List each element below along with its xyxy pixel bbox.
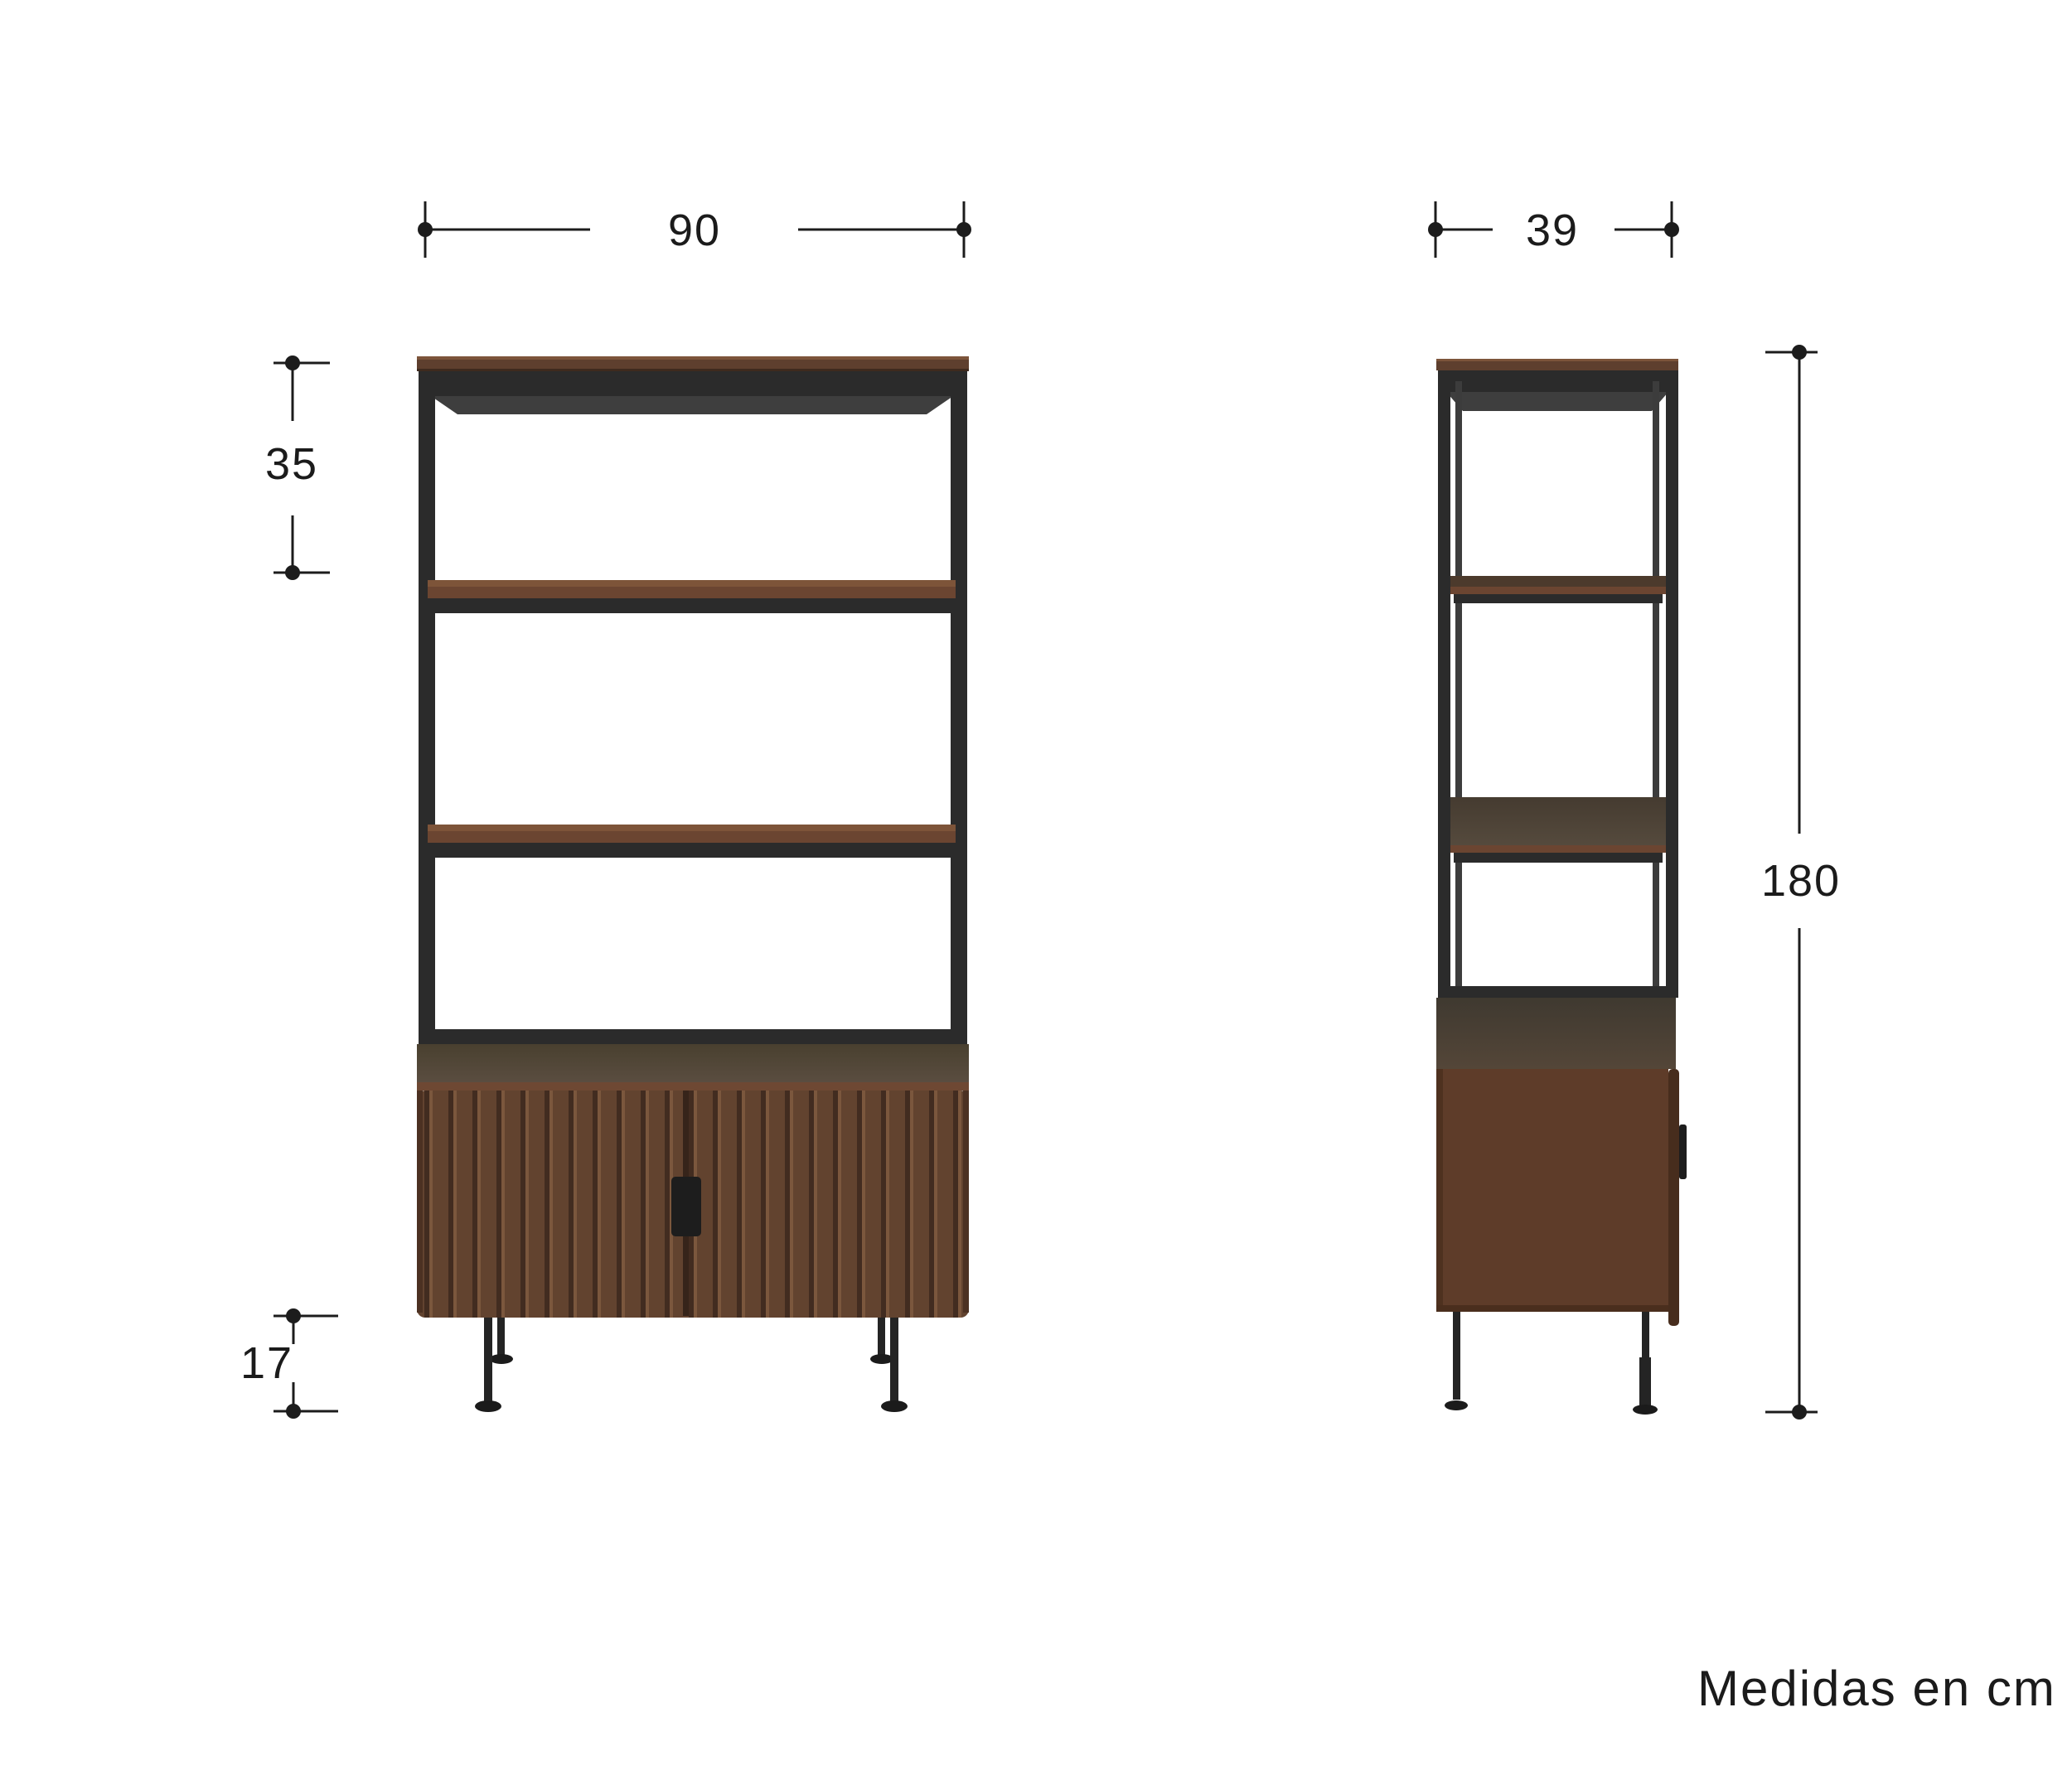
cabinet-left-edge — [417, 1091, 423, 1313]
diagram-svg: 90 39 35 17 180 — [0, 0, 2072, 1775]
side-top-panel-highlight — [1436, 359, 1678, 361]
shelf-rail — [432, 598, 951, 613]
door-front-edge — [1668, 1069, 1679, 1326]
dimension-label-top-section: 35 — [265, 439, 318, 489]
front-left-post — [419, 371, 435, 1044]
shelf-rail — [432, 843, 951, 858]
cabinet-top-rail — [425, 1029, 960, 1044]
dimension-label-leg-height: 17 — [240, 1338, 293, 1388]
shelf-rail — [1454, 594, 1663, 603]
leg-foot — [1633, 1405, 1658, 1415]
cabinet-top-front-edge — [417, 1082, 969, 1091]
side-view — [1436, 359, 1687, 1415]
front-right-post — [951, 371, 967, 1044]
dimension-front-width: 90 — [418, 201, 971, 258]
cabinet-top-rail — [1441, 986, 1674, 998]
leg-foot — [1445, 1400, 1468, 1410]
side-shelf-1 — [1450, 576, 1666, 603]
back-leg — [878, 1318, 885, 1356]
side-back-leg-lower — [1639, 1357, 1651, 1405]
cabinet-top-surface — [1436, 998, 1676, 1069]
cabinet-top-surface — [417, 1044, 969, 1082]
cabinet-side-panel — [1436, 1069, 1668, 1312]
leg-foot — [475, 1400, 501, 1412]
front-top-rail — [425, 371, 960, 396]
side-shelf-2 — [1450, 797, 1666, 863]
back-leg — [497, 1318, 505, 1356]
side-top-rail — [1441, 370, 1673, 392]
shelf-front-face — [428, 587, 956, 598]
side-front-post — [1438, 370, 1450, 998]
leg-foot — [870, 1354, 893, 1364]
front-cabinet — [417, 1029, 969, 1318]
dimension-label-side-depth: 39 — [1526, 206, 1579, 255]
front-top-panel-shadow — [417, 369, 969, 371]
shelf-top-edge — [428, 580, 956, 587]
shelf-rail — [1454, 853, 1663, 863]
cabinet-right-edge — [963, 1091, 969, 1313]
side-back-inner-post — [1653, 381, 1659, 998]
front-leg — [484, 1318, 492, 1402]
front-shelf-2 — [428, 825, 956, 858]
side-front-inner-post — [1455, 381, 1462, 998]
cabinet-side-left-edge — [1436, 1069, 1443, 1312]
shelf-top — [1450, 576, 1666, 587]
furniture-dimension-diagram: 90 39 35 17 180 — [0, 0, 2072, 1775]
dimension-top-section: 35 — [265, 355, 330, 580]
dimension-leg-height: 17 — [240, 1308, 338, 1419]
front-view — [417, 356, 969, 1412]
front-top-panel-highlight — [417, 356, 969, 360]
leg-foot — [490, 1354, 513, 1364]
side-front-leg — [1453, 1312, 1460, 1400]
side-legs — [1445, 1312, 1658, 1415]
dimension-label-front-width: 90 — [668, 206, 721, 255]
side-back-leg — [1642, 1312, 1649, 1361]
dimension-label-total-height: 180 — [1761, 856, 1841, 906]
shelf-top — [1450, 797, 1666, 845]
door-handle-side — [1679, 1124, 1687, 1179]
door-handle — [671, 1177, 701, 1236]
side-top-underside — [1446, 392, 1668, 411]
cabinet-side-bottom-edge — [1436, 1305, 1668, 1312]
side-cabinet — [1436, 986, 1687, 1326]
front-legs — [475, 1318, 908, 1412]
shelf-front-face — [428, 831, 956, 843]
dimension-total-height: 180 — [1761, 345, 1841, 1420]
front-shelf-1 — [428, 580, 956, 613]
front-top-back-rail — [431, 396, 953, 414]
shelf-edge — [1450, 587, 1666, 594]
dimension-side-depth: 39 — [1428, 201, 1679, 258]
side-back-post — [1666, 370, 1678, 998]
shelf-top-edge — [428, 825, 956, 831]
leg-foot — [881, 1400, 908, 1412]
front-leg — [890, 1318, 898, 1402]
shelf-edge — [1450, 845, 1666, 853]
measurement-units-caption: Medidas en cm — [1697, 1661, 2056, 1716]
